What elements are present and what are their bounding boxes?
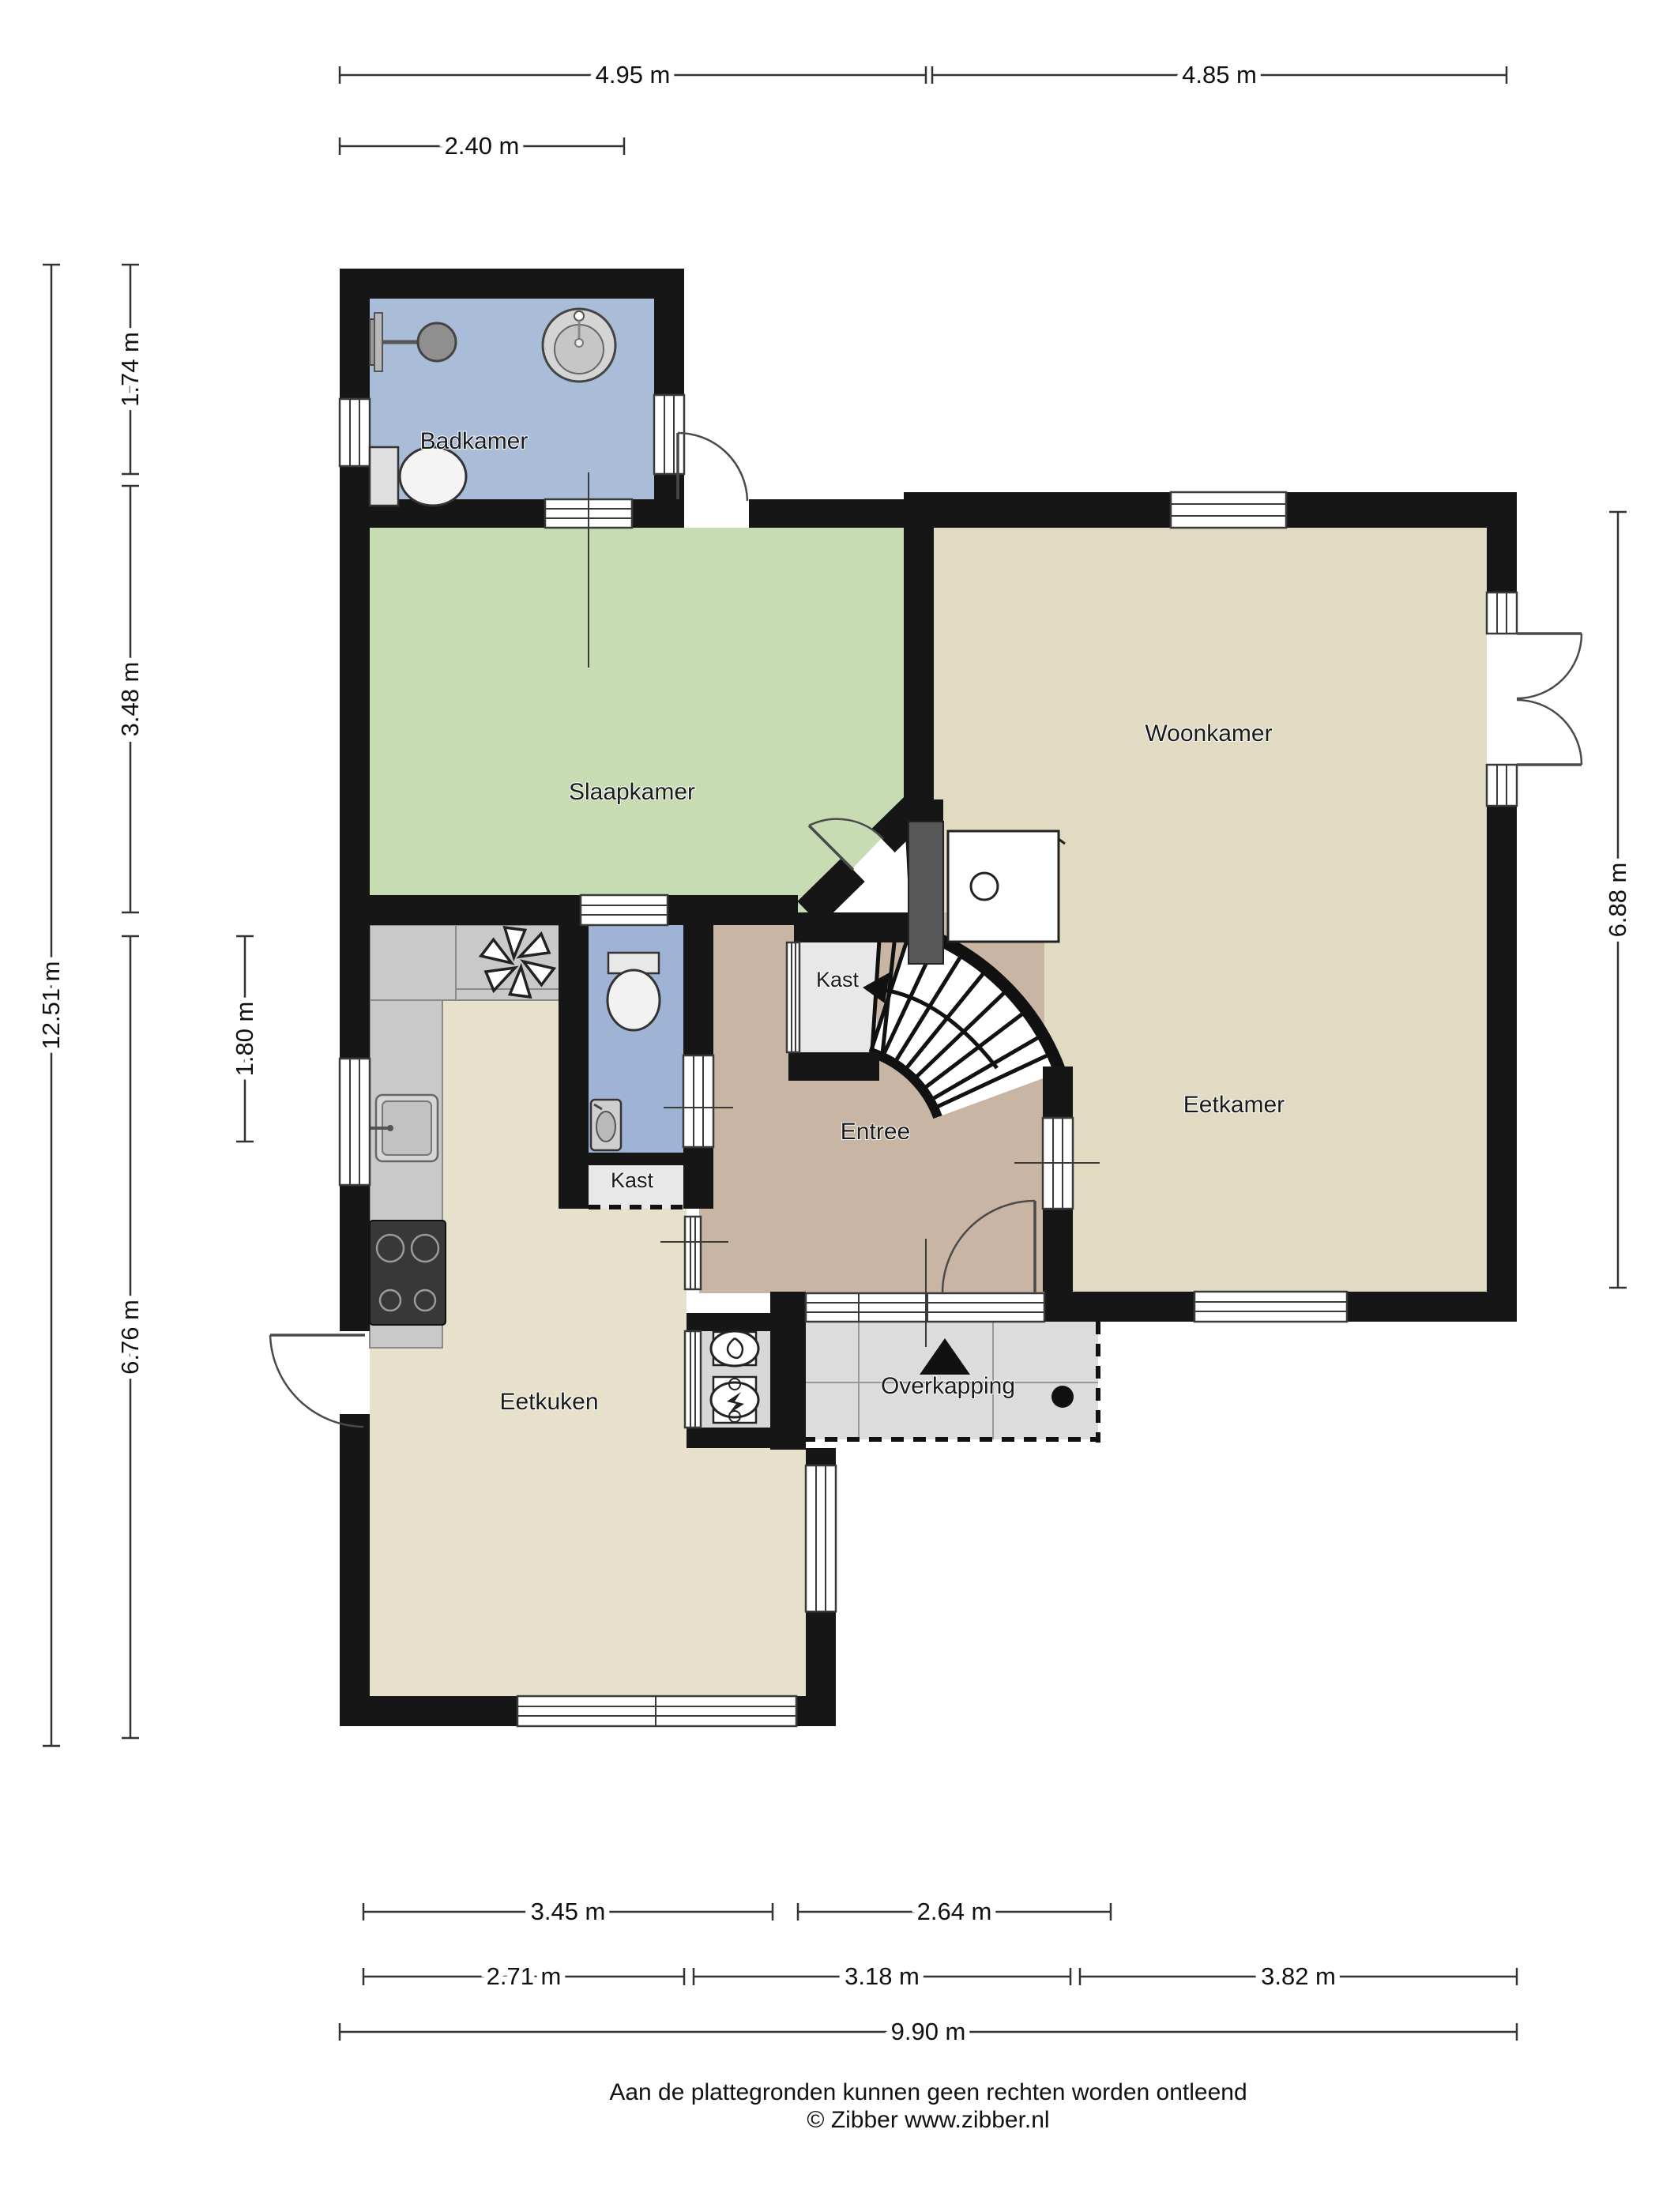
dimension-3.18m: 3.18 m — [694, 1962, 1070, 1990]
door-badkamer-buiten — [678, 433, 747, 501]
fireplace-icon — [948, 831, 1065, 942]
dimension-label: 6.76 m — [116, 1300, 144, 1375]
floor-slaapkamer — [370, 528, 904, 925]
dimension-label: 1.74 m — [116, 332, 144, 407]
room-label-kast: Kast — [611, 1168, 654, 1192]
window-eetkuken-bottom — [517, 1696, 796, 1726]
dimension-12.51m: 12.51 m — [37, 265, 65, 1746]
window-right-upper — [1487, 592, 1517, 634]
room-label-entree: Entree — [841, 1119, 910, 1145]
copyright-text: © Zibber www.zibber.nl — [340, 2106, 1517, 2135]
window-badkamer-right — [654, 395, 684, 474]
boiler-icon — [711, 1377, 758, 1423]
dimension-label: 2.40 m — [445, 132, 520, 160]
dimension-label: 1.80 m — [231, 1002, 258, 1077]
dimension-9.90m: 9.90 m — [340, 2018, 1517, 2045]
overkapping-dot — [1051, 1386, 1074, 1408]
window-woonkamer-top — [1171, 492, 1286, 528]
dimension-6.88m: 6.88 m — [1604, 512, 1631, 1288]
window-eetkamer-bottom — [1194, 1292, 1347, 1322]
dimension-2.40m: 2.40 m — [340, 132, 624, 160]
window-niche-left — [685, 1331, 701, 1428]
dimension-label: 3.82 m — [1261, 1962, 1336, 1990]
room-label-woonkamer: Woonkamer — [1145, 720, 1272, 747]
wc-sink-icon — [591, 1100, 621, 1150]
kitchen-sink — [365, 1095, 438, 1161]
window-kast-trap — [787, 942, 799, 1052]
room-label-eetkamer: Eetkamer — [1183, 1092, 1285, 1118]
dimension-label: 4.85 m — [1182, 61, 1257, 88]
dimension-4.85m: 4.85 m — [932, 61, 1507, 88]
dimension-label: 3.18 m — [845, 1962, 920, 1990]
window-badkamer-left — [340, 399, 370, 466]
chimney — [908, 822, 943, 964]
dimension-label: 9.90 m — [891, 2018, 966, 2045]
dimension-1.74m: 1.74 m — [116, 265, 144, 474]
door-frans-onder — [1517, 700, 1582, 765]
door-frans-boven — [1517, 634, 1582, 698]
room-label-eetkuken: Eetkuken — [499, 1389, 598, 1415]
dimension-3.48m: 3.48 m — [116, 486, 144, 912]
dimension-label: 3.48 m — [116, 662, 144, 737]
room-label-kast: Kast — [816, 968, 860, 991]
dimension-1.80m: 1.80 m — [231, 936, 258, 1142]
dimension-label: 6.88 m — [1604, 863, 1631, 938]
wc-toilet-icon — [608, 953, 660, 1030]
door-eetkuken-buiten — [270, 1335, 365, 1427]
stove — [370, 1221, 446, 1325]
window-eetkuken-entree — [685, 1217, 701, 1289]
dimension-6.76m: 6.76 m — [116, 936, 144, 1738]
dimension-label: 4.95 m — [596, 61, 671, 88]
window-wc-entree — [683, 1055, 713, 1147]
room-label-slaapkamer: Slaapkamer — [569, 779, 695, 805]
window-eetkuken-right — [806, 1465, 836, 1612]
badkamer-sink-icon — [543, 309, 615, 382]
room-label-badkamer: Badkamer — [420, 428, 529, 454]
dimension-2.64m: 2.64 m — [798, 1898, 1111, 1925]
footer-disclaimer: Aan de plattegronden kunnen geen rechten… — [340, 2079, 1517, 2135]
geiser-icon — [711, 1331, 758, 1366]
dimension-label: 2.64 m — [917, 1898, 992, 1925]
floor-kast-onder-trap — [799, 942, 877, 1052]
badkamer-toilet-icon — [370, 447, 466, 506]
dimension-label: 2.71 m — [487, 1962, 562, 1990]
room-label-overkapping: Overkapping — [881, 1373, 1015, 1399]
dimension-3.82m: 3.82 m — [1080, 1962, 1517, 1990]
dimension-4.95m: 4.95 m — [340, 61, 926, 88]
dimension-label: 3.45 m — [531, 1898, 606, 1925]
dimension-3.45m: 3.45 m — [363, 1898, 773, 1925]
window-right-lower — [1487, 765, 1517, 806]
disclaimer-text: Aan de plattegronden kunnen geen rechten… — [340, 2079, 1517, 2106]
dimension-2.71m: 2.71 m — [363, 1962, 684, 1990]
window-slaapkamer-wc — [581, 895, 668, 925]
floorplan-canvas: BadkamerSlaapkamerWoonkamerEetkamerKastE… — [0, 0, 1659, 2212]
dimension-label: 12.51 m — [37, 961, 65, 1049]
window-keuken-left — [340, 1059, 370, 1185]
